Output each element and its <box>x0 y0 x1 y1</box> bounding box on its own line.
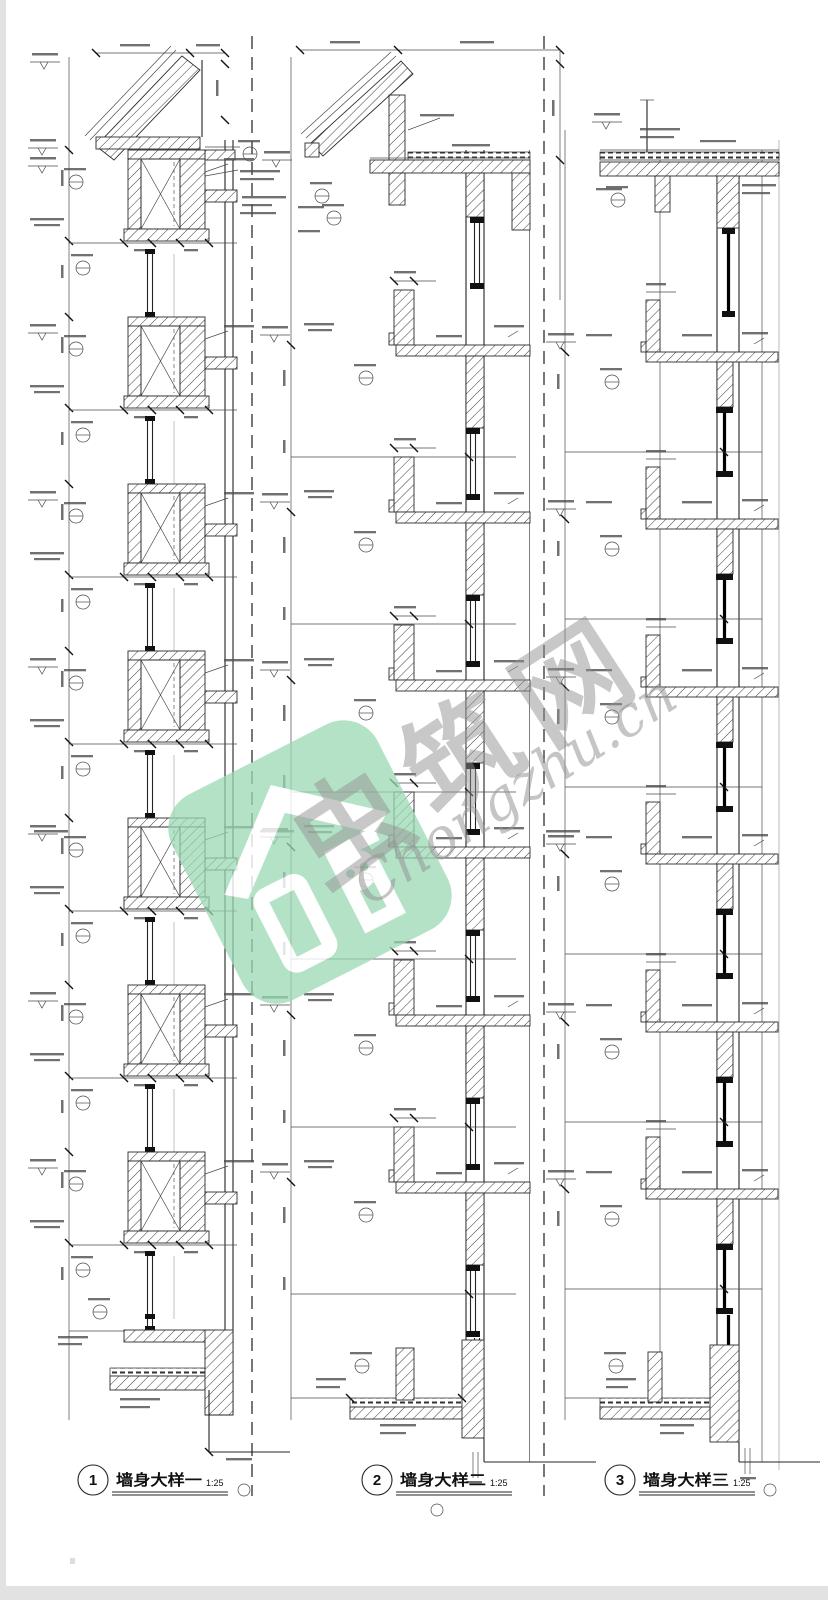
figure-1-title: 墙身大样一 <box>116 1471 202 1489</box>
sheet-left-edge <box>0 0 6 1600</box>
figure-3-scale: 1:25 <box>733 1478 751 1488</box>
section-2-wall-detail <box>260 41 596 1483</box>
figure-1-ref-bubble <box>238 1484 250 1496</box>
print-mark <box>70 1558 75 1564</box>
figure-2-title: 墙身大样二 <box>400 1471 486 1489</box>
figure-1-number: 1 <box>89 1472 97 1489</box>
section-1-wall-detail <box>28 44 290 1460</box>
drawing-sheet: 1 墙身大样一 1:25 2 墙身大样二 1:25 3 墙身大样三 1:25 虫… <box>0 0 828 1600</box>
sheet-bottom-edge <box>0 1586 828 1600</box>
figure-1-scale: 1:25 <box>206 1478 224 1488</box>
figure-3-number: 3 <box>616 1472 624 1489</box>
figure-2-scale: 1:25 <box>490 1478 508 1488</box>
figure-1-label: 1 墙身大样一 1:25 <box>78 1465 250 1496</box>
figure-2-label: 2 墙身大样二 1:25 <box>362 1465 512 1516</box>
figure-2-number: 2 <box>373 1472 381 1489</box>
figure-3-title: 墙身大样三 <box>643 1471 729 1489</box>
figure-3-ref-bubble <box>764 1484 776 1496</box>
figure-2-ref-bubble <box>431 1504 443 1516</box>
drawing-canvas: 1 墙身大样一 1:25 2 墙身大样二 1:25 3 墙身大样三 1:25 <box>0 0 828 1600</box>
